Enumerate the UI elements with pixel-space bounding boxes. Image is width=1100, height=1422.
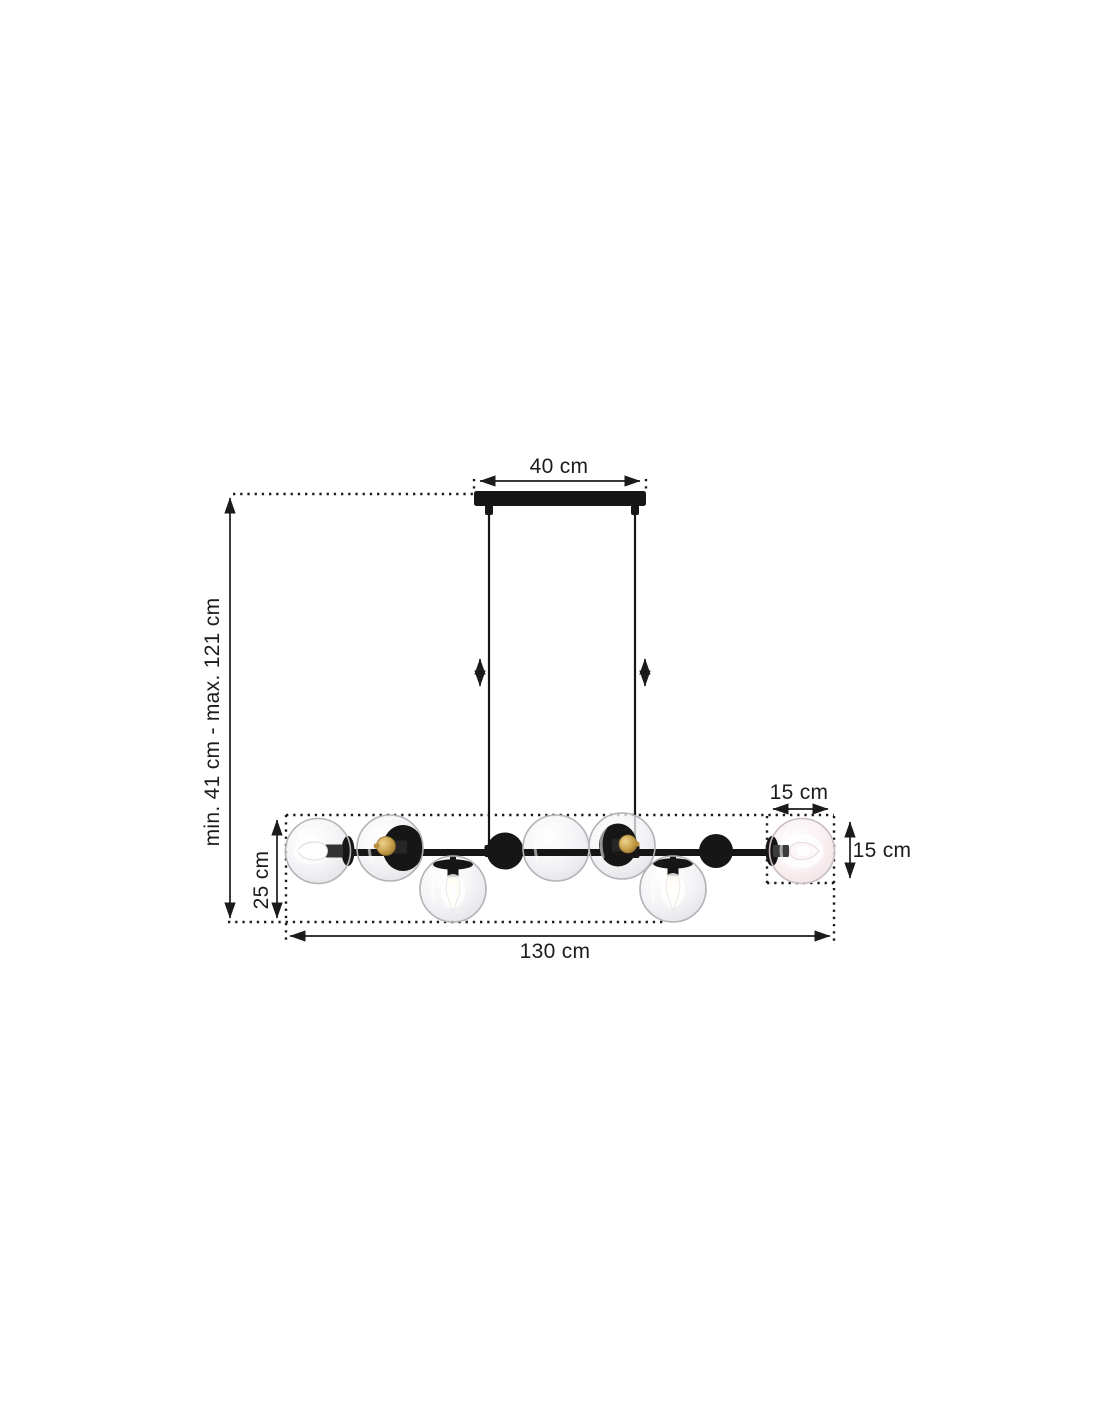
- shade-width-label: 15 cm: [770, 781, 829, 805]
- glass-globe-fills: [286, 813, 835, 922]
- fixture-width-label: 130 cm: [520, 940, 591, 964]
- product-dimension-diagram: 40 cm min. 41 cm - max. 121 cm 25 cm 130…: [0, 0, 1100, 1422]
- canopy-width-label: 40 cm: [530, 455, 589, 479]
- ceiling-canopy-group: [474, 491, 646, 850]
- globe-2-bulb-tip: [374, 843, 380, 849]
- globe-3-bulb-core: [450, 884, 457, 902]
- globe-6-bulb-core: [670, 883, 677, 901]
- cable-rod-connector-left: [485, 845, 493, 857]
- globe-2-bulb: [377, 837, 396, 856]
- black-ball-right: [699, 834, 733, 868]
- globe-1-bulb-core: [304, 846, 320, 857]
- globe-5-bulb: [619, 835, 637, 853]
- lamp-dimension-drawing: [0, 0, 1100, 1422]
- globe-7-bulb-core: [796, 846, 810, 856]
- shade-height-label: 15 cm: [853, 839, 912, 863]
- height-range-label: min. 41 cm - max. 121 cm: [201, 598, 225, 847]
- globe-5-bulb-tip: [634, 841, 639, 846]
- ceiling-canopy-bar: [474, 491, 646, 506]
- fixture-height-label: 25 cm: [250, 851, 274, 910]
